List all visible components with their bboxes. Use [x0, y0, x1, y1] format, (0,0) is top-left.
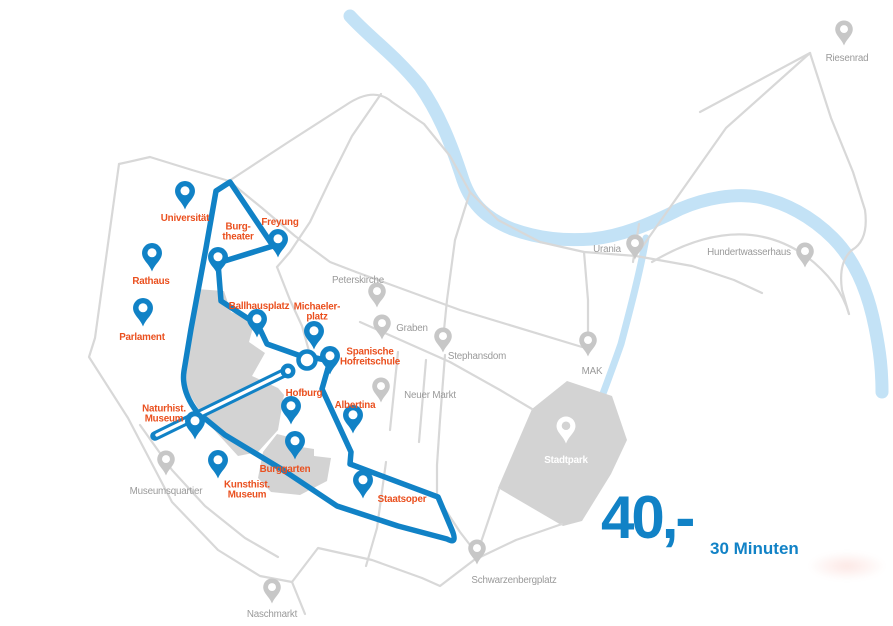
- price-duration: 30 Minuten: [710, 539, 799, 559]
- label-burgtheater: Burg- theater: [222, 223, 253, 244]
- label-hofburg: Hofburg: [286, 389, 323, 399]
- label-albertina: Albertina: [335, 401, 376, 411]
- label-neuer-markt: Neuer Markt: [404, 391, 456, 401]
- label-staatsoper: Staatsoper: [378, 495, 427, 505]
- label-rathaus: Rathaus: [132, 277, 169, 287]
- watermark-artifact: [808, 552, 886, 580]
- michaelerplatz-circle: [299, 352, 316, 369]
- label-michaelerplatz: Michaeler- platz: [294, 303, 340, 324]
- label-museumsquartier: Museumsquartier: [130, 487, 203, 497]
- label-parlament: Parlament: [119, 333, 165, 343]
- danube-canal: [350, 16, 882, 392]
- label-naschmarkt: Naschmarkt: [247, 610, 297, 620]
- label-kunsthist-museum: Kunsthist. Museum: [224, 481, 270, 502]
- label-ballhausplatz: Ballhausplatz: [229, 302, 290, 312]
- label-spanische-hofreitschule: Spanische Hofreitschule: [340, 348, 400, 369]
- label-stadtpark: Stadtpark: [544, 456, 587, 466]
- label-hundertwasserhaus: Hundertwasserhaus: [707, 248, 791, 258]
- label-freyung: Freyung: [261, 218, 298, 228]
- label-urania: Urania: [593, 245, 621, 255]
- price-amount: 40,-: [601, 490, 692, 546]
- vienna-tour-map: RiesenradUraniaHundertwasserhausPeterski…: [0, 0, 893, 626]
- label-burggarten: Burggarten: [260, 465, 311, 475]
- label-universitaet: Universität: [161, 214, 209, 224]
- label-mak: MAK: [582, 367, 603, 377]
- label-naturhist-museum: Naturhist. Museum: [142, 405, 186, 426]
- map-canvas: [0, 0, 893, 626]
- label-peterskirche: Peterskirche: [332, 276, 384, 286]
- label-schwarzenbergplatz: Schwarzenbergplatz: [471, 576, 556, 586]
- hofburg-area: [186, 289, 284, 456]
- label-riesenrad: Riesenrad: [826, 54, 869, 64]
- label-stephansdom: Stephansdom: [448, 352, 506, 362]
- label-graben: Graben: [396, 324, 427, 334]
